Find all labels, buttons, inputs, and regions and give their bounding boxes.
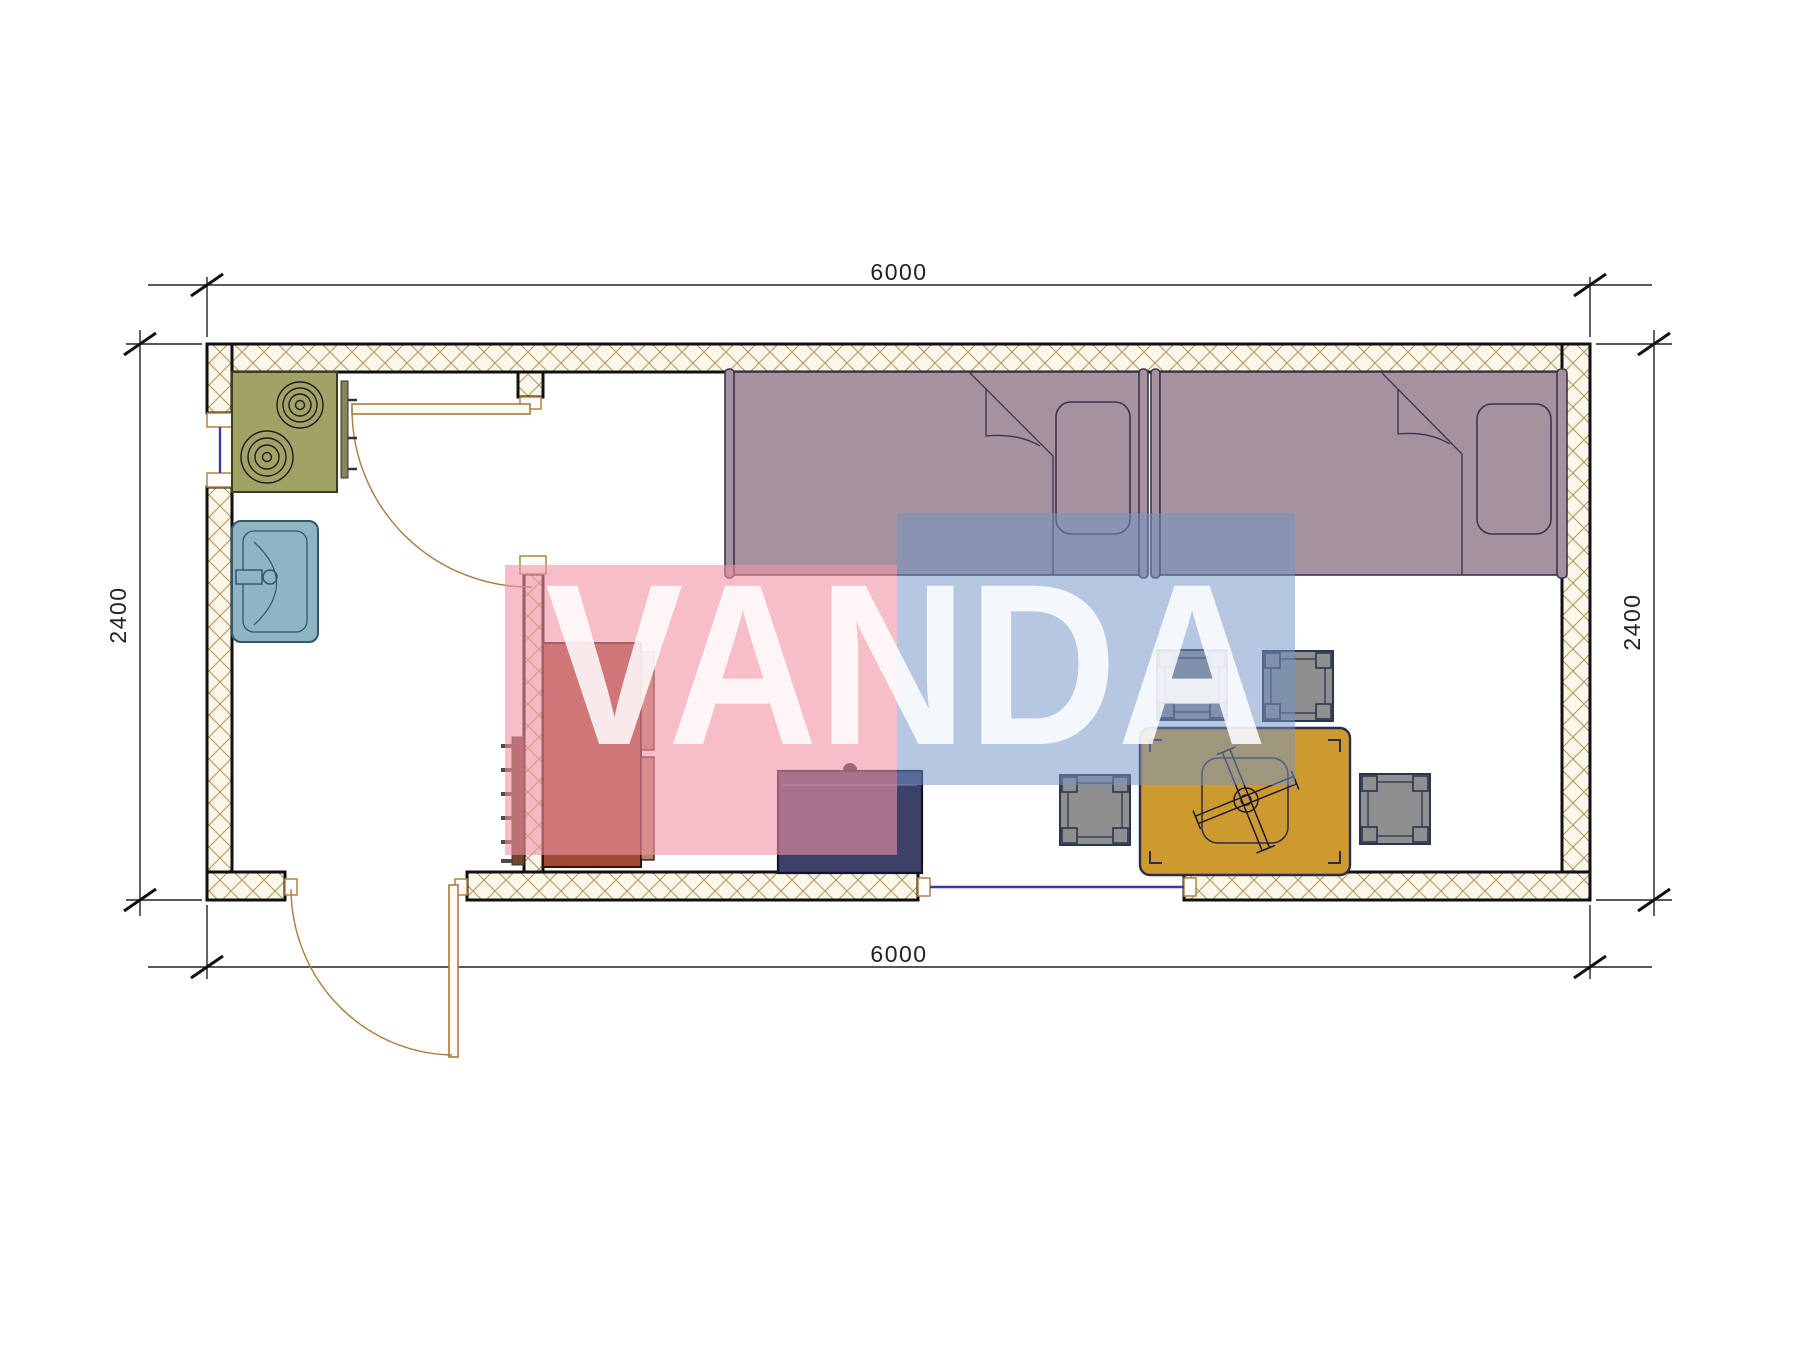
dim-label-bottom: 6000 bbox=[870, 941, 927, 967]
stool-4 bbox=[1360, 774, 1430, 844]
floor-plan-drawing: 6000 6000 2400 2400 bbox=[0, 0, 1800, 1350]
doors bbox=[291, 404, 532, 1057]
interior-door-leaf bbox=[352, 404, 530, 414]
bed-2-footboard bbox=[1557, 369, 1567, 578]
interior-door-swing-arc bbox=[352, 409, 532, 587]
sink bbox=[232, 521, 318, 642]
jamb-left-window-top bbox=[207, 413, 232, 427]
entry-door-swing-arc bbox=[291, 889, 452, 1055]
wall-bottom-left bbox=[207, 872, 285, 900]
wall-bottom-middle bbox=[467, 872, 918, 900]
entry-door-leaf bbox=[449, 885, 458, 1057]
wall-pier bbox=[518, 372, 543, 397]
dim-label-left: 2400 bbox=[105, 586, 131, 643]
floor-plan-canvas: 6000 6000 2400 2400 bbox=[0, 0, 1800, 1350]
jamb-bottom-window-left bbox=[918, 878, 930, 896]
stove bbox=[232, 372, 357, 492]
bed-2-pillow bbox=[1477, 404, 1551, 534]
faucet-icon bbox=[236, 570, 262, 584]
jamb-bottom-window-right bbox=[1184, 878, 1196, 896]
wall-top bbox=[207, 344, 1590, 372]
watermark-text: VANDA bbox=[545, 536, 1267, 793]
dim-label-top: 6000 bbox=[870, 259, 927, 285]
wall-left-upper bbox=[207, 344, 232, 413]
dim-label-right: 2400 bbox=[1619, 593, 1645, 650]
wall-left-lower bbox=[207, 487, 232, 900]
stove-side-rail bbox=[341, 381, 348, 478]
jamb-left-window-bottom bbox=[207, 473, 232, 487]
wall-bottom-right bbox=[1184, 872, 1590, 900]
